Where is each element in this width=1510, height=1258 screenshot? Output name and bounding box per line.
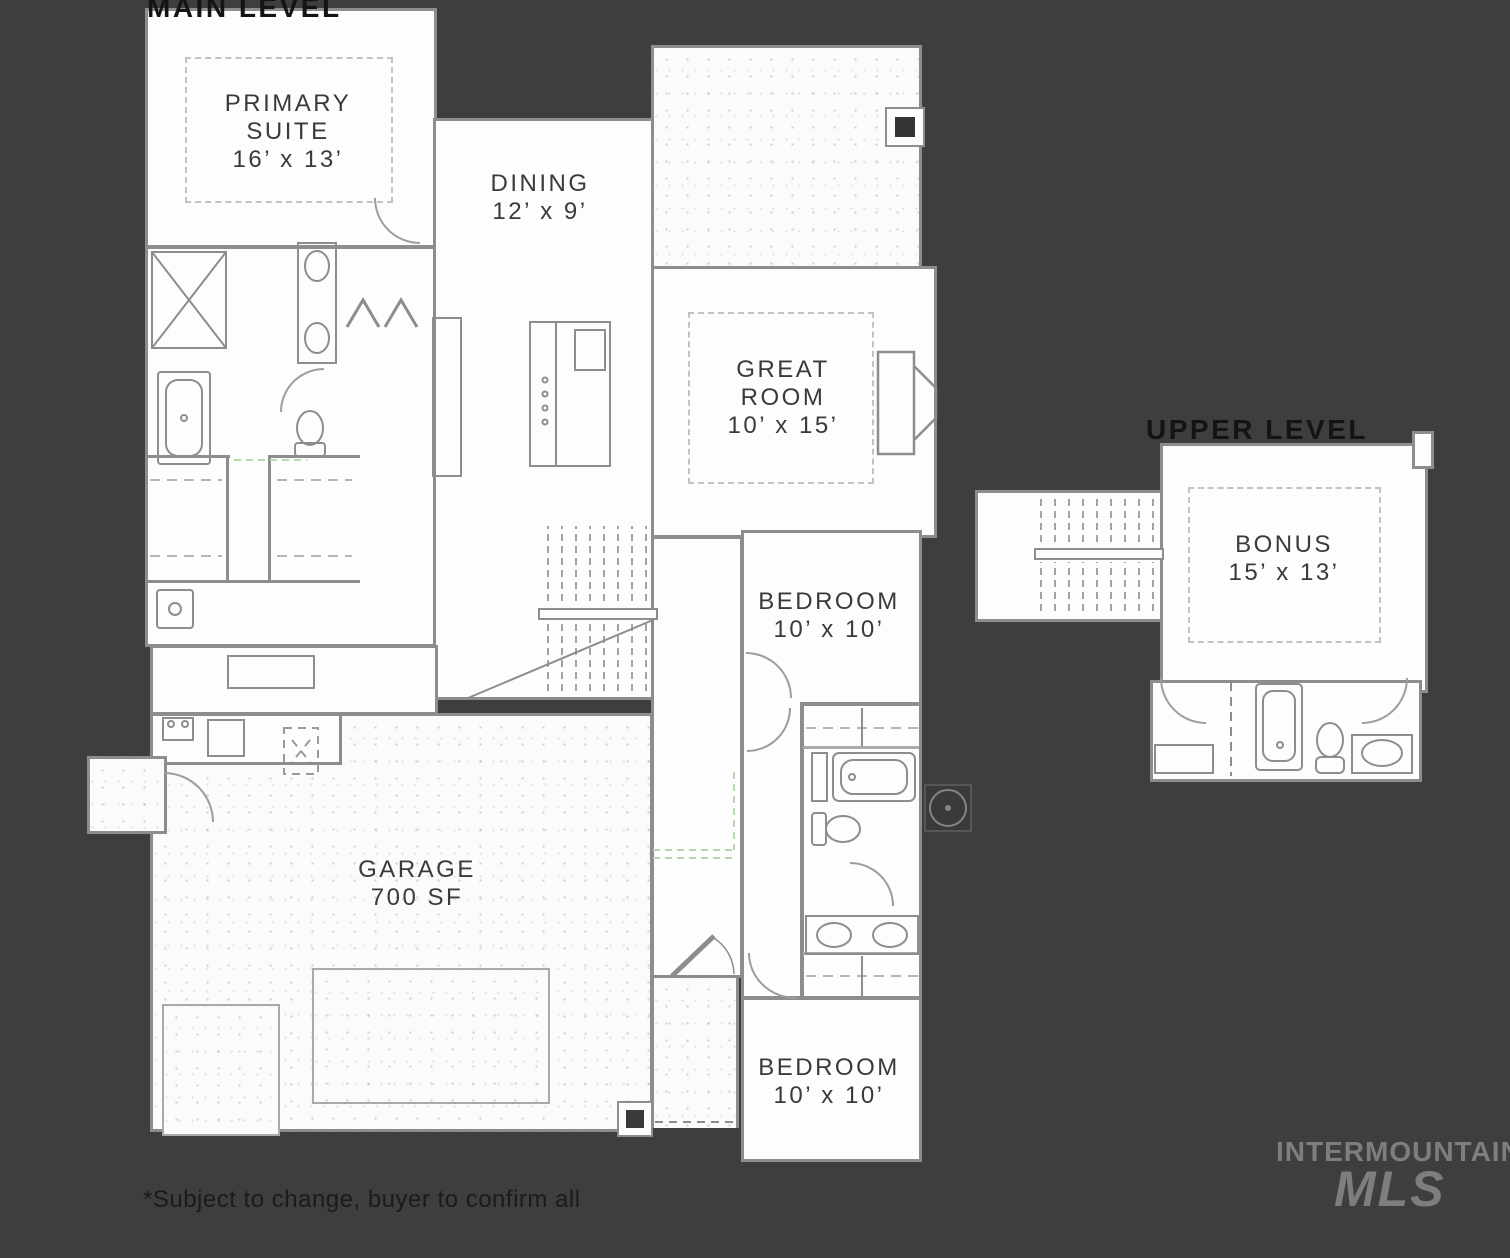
room-dims: 15’ x 13’ [1174, 559, 1394, 587]
stairs-main-upper-run [547, 526, 651, 606]
utility-symbol [925, 785, 971, 831]
room-label-bedroom-lower: BEDROOM 10’ x 10’ [719, 1054, 939, 1110]
watermark-line2: MLS [1334, 1160, 1510, 1218]
room-mudroom [150, 645, 438, 715]
room-name: SUITE [178, 118, 398, 146]
room-name: PRIMARY [178, 90, 398, 118]
room-label-bonus: BONUS 15’ x 13’ [1174, 531, 1394, 587]
room-name: ROOM [673, 384, 893, 412]
stairs-upper-landing [1034, 548, 1164, 560]
room-label-garage: GARAGE 700 SF [307, 856, 527, 912]
room-dims: 700 SF [307, 884, 527, 912]
garage-pad-left [162, 1004, 280, 1136]
mls-watermark: INTERMOUNTAIN MLS [1276, 1136, 1510, 1218]
room-label-primary-suite: PRIMARY SUITE 16’ x 13’ [178, 90, 398, 174]
laundry-nook [150, 713, 342, 765]
upper-level-title: UPPER LEVEL [1146, 414, 1368, 446]
room-name: GARAGE [307, 856, 527, 884]
closet-wall [226, 455, 229, 583]
room-name: GREAT [673, 356, 893, 384]
closet-wall [268, 455, 360, 458]
bath-wall [800, 702, 922, 706]
patio [651, 45, 922, 270]
floor-plan-image: MAIN LEVEL UPPER LEVEL PRIMARY SUITE 16’… [0, 0, 1510, 1258]
main-level-title: MAIN LEVEL [147, 0, 342, 24]
closet-wall [268, 455, 271, 583]
room-label-great-room: GREAT ROOM 10’ x 15’ [673, 356, 893, 440]
closet-divider [803, 746, 919, 749]
room-dims: 16’ x 13’ [178, 146, 398, 174]
stairs-upper-run1 [1040, 495, 1156, 547]
stairs-upper-run2 [1040, 562, 1156, 616]
closet-wall [145, 580, 360, 583]
vanity-wall [803, 952, 919, 955]
bath-wall [741, 996, 922, 1000]
room-dims: 10’ x 15’ [673, 412, 893, 440]
stairs-main-landing [538, 608, 658, 620]
garage-pad-right [312, 968, 550, 1104]
room-name: BEDROOM [719, 1054, 939, 1082]
stairs-main-lower-run [547, 622, 651, 696]
room-dims: 12’ x 9’ [430, 198, 650, 226]
room-label-dining: DINING 12’ x 9’ [430, 170, 650, 226]
closet-wall [145, 455, 230, 458]
room-dims: 10’ x 10’ [719, 616, 939, 644]
disclaimer-note: *Subject to change, buyer to confirm all [143, 1186, 581, 1214]
room-dims: 10’ x 10’ [719, 1082, 939, 1110]
room-name: DINING [430, 170, 650, 198]
room-primary-bath [145, 246, 437, 647]
room-label-bedroom-upper: BEDROOM 10’ x 10’ [719, 588, 939, 644]
room-name: BEDROOM [719, 588, 939, 616]
porch [87, 756, 167, 834]
upper-chimney-bump [1412, 431, 1434, 469]
room-name: BONUS [1174, 531, 1394, 559]
